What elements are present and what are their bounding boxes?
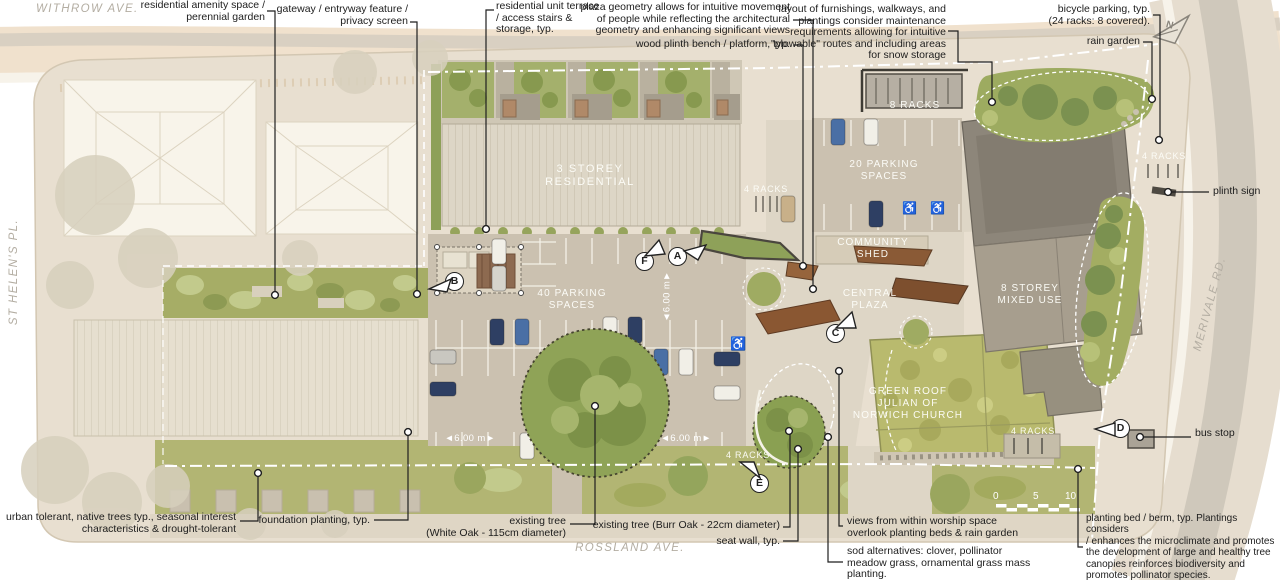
annotation-foundation: foundation planting, typ. [230, 515, 370, 527]
annotation-worship-views: views from within worship space overlook… [847, 516, 1077, 539]
annotation-furnishings: layout of furnishings, walkways, and pla… [706, 4, 946, 62]
plan-marker-d: D [1111, 419, 1131, 439]
west-residential-building [74, 320, 418, 436]
plan-marker-a: A [668, 247, 688, 267]
label-20-parking: 20 PARKING SPACES [814, 159, 954, 183]
label-3-storey-residential: 3 STOREY RESIDENTIAL [490, 163, 690, 189]
accessible-parking-icon: ♿ [730, 336, 746, 351]
annotation-plinth-sign: plinth sign [1213, 186, 1277, 198]
dim-arrow-left: ◄ [444, 433, 454, 444]
label-church: GREEN ROOF JULIAN OF NORWICH CHURCH [828, 386, 988, 422]
plan-marker-f: F [635, 252, 655, 272]
dim-arrow-left: ◄ [662, 312, 673, 322]
annotation-seat-wall: seat wall, typ. [680, 536, 780, 548]
dim-arrow-right: ► [662, 271, 673, 281]
plan-marker-b: B [445, 272, 465, 292]
accessible-parking-icon: ♿ [930, 201, 945, 215]
label-8-racks: 8 RACKS [865, 100, 965, 112]
dim-value: 6.00 m [670, 433, 701, 444]
rossland-lawn-west [155, 440, 435, 514]
label-mixed-use: 8 STOREY MIXED USE [960, 283, 1100, 307]
dim-arrow-left: ◄ [660, 433, 670, 444]
label-40-parking: 40 PARKING SPACES [492, 288, 652, 312]
perennial-garden [163, 268, 428, 318]
annotation-bicycle: bicycle parking, typ. (24 racks: 8 cover… [950, 4, 1150, 27]
accessible-parking-icon: ♿ [902, 201, 917, 215]
existing-house-2 [266, 122, 418, 234]
dim-arrow-right: ► [486, 433, 496, 444]
annotation-sod: sod alternatives: clover, pollinator mea… [847, 546, 1062, 580]
scale-0: 0 [993, 491, 999, 502]
site-plan-page: ♿ ♿ [0, 0, 1280, 580]
scale-5: 5 [1033, 491, 1039, 502]
dim-value: 6.00 m [662, 281, 673, 312]
annotation-bus-stop: bus stop [1195, 428, 1255, 440]
annotation-burr-oak: existing tree (Burr Oak - 22cm diameter) [555, 520, 780, 532]
label-4-racks-se: 4 RACKS [997, 425, 1069, 437]
street-rossland: ROSSLAND AVE. [560, 542, 700, 554]
plan-marker-c: C [826, 324, 846, 344]
label-central-plaza: CENTRAL PLAZA [810, 288, 930, 312]
label-4-racks-east: 4 RACKS [1124, 150, 1204, 162]
dimension-west: ◄6.00 m► [436, 433, 504, 444]
dimension-east: ◄6.00 m► [652, 433, 720, 444]
annotation-berm: planting bed / berm, typ. Plantings cons… [1086, 513, 1278, 580]
scale-10: 10 [1065, 491, 1076, 502]
label-4-racks-plaza: 4 RACKS [731, 183, 801, 195]
dimension-vertical: ◄6.00 m► [662, 263, 673, 331]
annotation-white-oak: existing tree (White Oak - 115cm diamete… [406, 516, 566, 539]
dim-value: 6.00 m [454, 433, 485, 444]
plan-marker-e: E [750, 474, 770, 494]
annotation-urban-trees: urban tolerant, native trees typ., seaso… [6, 512, 236, 535]
dim-arrow-right: ► [702, 433, 712, 444]
annotation-gateway: gateway / entryway feature / privacy scr… [188, 4, 408, 27]
street-st-helens: ST HELEN'S PL. [8, 216, 20, 328]
label-community-shed: COMMUNITY SHED [813, 237, 933, 261]
annotation-rain-garden: rain garden [1040, 36, 1140, 48]
bike-racks-se [1004, 434, 1060, 458]
